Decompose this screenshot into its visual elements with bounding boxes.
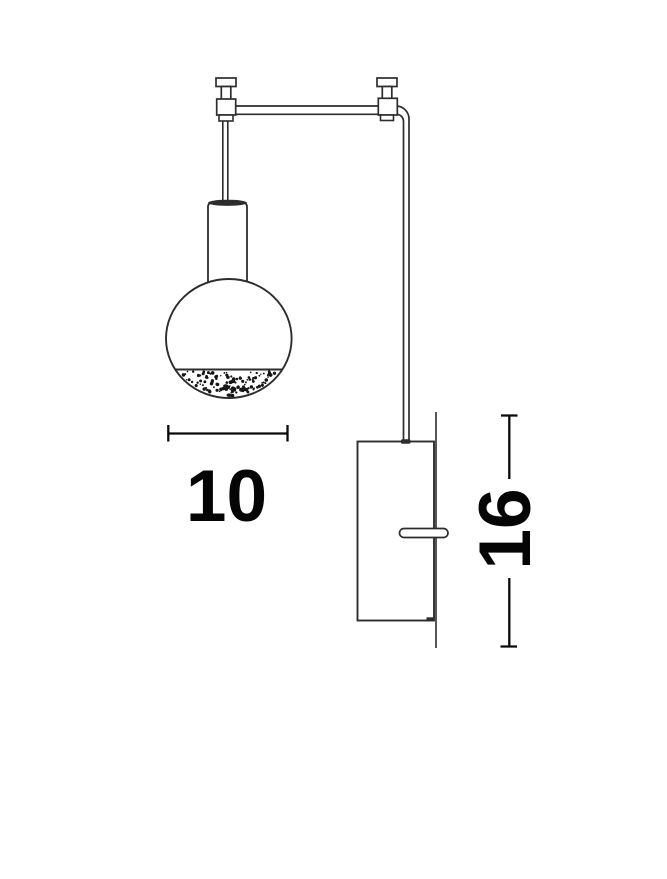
granule-dot — [205, 387, 207, 389]
mount-lip — [219, 115, 233, 121]
mount-block — [217, 99, 236, 115]
granule-dot — [219, 391, 221, 393]
granule-dot — [236, 386, 240, 390]
glass-globe — [166, 279, 292, 398]
lamp-socket — [208, 200, 247, 283]
hanging-bar-inner-line — [236, 114, 404, 441]
granule-dot — [208, 389, 211, 392]
ceiling-mount-left — [216, 78, 236, 121]
mount-lip — [381, 115, 394, 121]
granule-dot — [235, 391, 237, 393]
granule-dot — [186, 379, 187, 380]
granule-dot — [202, 371, 205, 374]
granule-dot — [229, 380, 233, 384]
granule-dot — [250, 371, 252, 373]
granule-dot — [203, 380, 206, 383]
socket-rim — [208, 200, 247, 206]
height-dimension-label: 16 — [465, 488, 546, 569]
granule-dot — [215, 375, 218, 378]
granule-dot — [216, 383, 219, 386]
granule-dot — [256, 372, 258, 374]
wall-plate — [358, 412, 449, 648]
granule-dot — [267, 376, 269, 378]
cord-entry-grip — [401, 439, 411, 443]
mount-cap — [216, 78, 236, 87]
granule-dot — [213, 386, 215, 388]
granule-dot — [200, 383, 201, 384]
granule-dot — [207, 371, 210, 374]
switch-knob — [400, 529, 449, 538]
granule-dot — [267, 374, 269, 376]
granule-dot — [230, 392, 232, 394]
granule-dot — [232, 388, 236, 392]
granule-dot — [242, 385, 245, 388]
hanging-bar — [236, 106, 410, 441]
hanging-bar-outer-line — [236, 106, 410, 441]
granule-dot — [250, 385, 253, 388]
granule-dot — [245, 381, 247, 383]
granule-dot — [239, 376, 241, 378]
granule-dot — [261, 382, 263, 384]
mount-block — [378, 98, 397, 115]
granule-dot — [247, 387, 249, 389]
granule-dot — [210, 382, 213, 385]
granule-dot — [236, 378, 239, 381]
ceiling-mount-right — [377, 78, 397, 121]
granule-dot — [215, 377, 218, 380]
socket-body — [208, 203, 247, 284]
granule-dot — [188, 378, 191, 381]
granule-dot — [244, 384, 246, 386]
granule-dot — [202, 384, 204, 386]
granule-dot — [196, 381, 198, 383]
granule-dot — [264, 382, 266, 384]
width-dimension: 10 — [168, 425, 288, 537]
granule-dot — [199, 375, 201, 377]
height-dimension: 16 — [465, 416, 546, 647]
pendant-cord — [223, 121, 228, 202]
granule-dot — [195, 384, 198, 387]
granule-dot — [192, 370, 194, 372]
granule-dot — [260, 373, 261, 374]
granule-dot — [252, 380, 255, 383]
granule-dot — [229, 388, 231, 390]
granule-dot — [273, 372, 276, 375]
granule-dot — [231, 394, 235, 398]
granule-dot — [230, 375, 232, 377]
granule-dot — [227, 386, 230, 389]
granule-dot — [228, 393, 232, 397]
granule-dot — [248, 376, 251, 379]
granule-dot — [184, 373, 186, 375]
granule-dot — [206, 376, 209, 379]
granule-dot — [254, 376, 257, 379]
granule-dot — [224, 384, 226, 386]
granule-dot — [225, 381, 228, 384]
granule-dot — [226, 375, 227, 376]
width-dimension-label: 10 — [186, 456, 267, 537]
plate-bottom-mark — [427, 617, 434, 621]
granule-dot — [199, 379, 202, 382]
granule-dot — [226, 372, 227, 373]
mount-stem — [221, 87, 231, 100]
granule-dot — [223, 372, 225, 374]
granule-dot — [220, 375, 221, 376]
granule-dot — [244, 388, 247, 391]
mount-cap — [377, 78, 397, 87]
granule-dot — [240, 388, 242, 390]
granule-dot — [263, 373, 265, 375]
granule-dot — [246, 391, 249, 394]
granule-dot — [215, 389, 218, 392]
granule-dot — [241, 380, 244, 383]
granule-dot — [191, 381, 193, 383]
granule-dot — [247, 379, 248, 380]
granule-dot — [261, 384, 264, 387]
granule-dot — [258, 385, 261, 388]
globe-outline — [166, 279, 292, 398]
granule-dot — [265, 378, 269, 382]
granule-dot — [187, 371, 189, 373]
granule-dot — [253, 387, 255, 389]
granule-dot — [212, 371, 213, 372]
granule-dot — [209, 373, 211, 375]
granule-dot — [258, 375, 260, 377]
granule-dot — [211, 379, 214, 382]
lamp-technical-drawing: 10 16 — [0, 0, 667, 879]
